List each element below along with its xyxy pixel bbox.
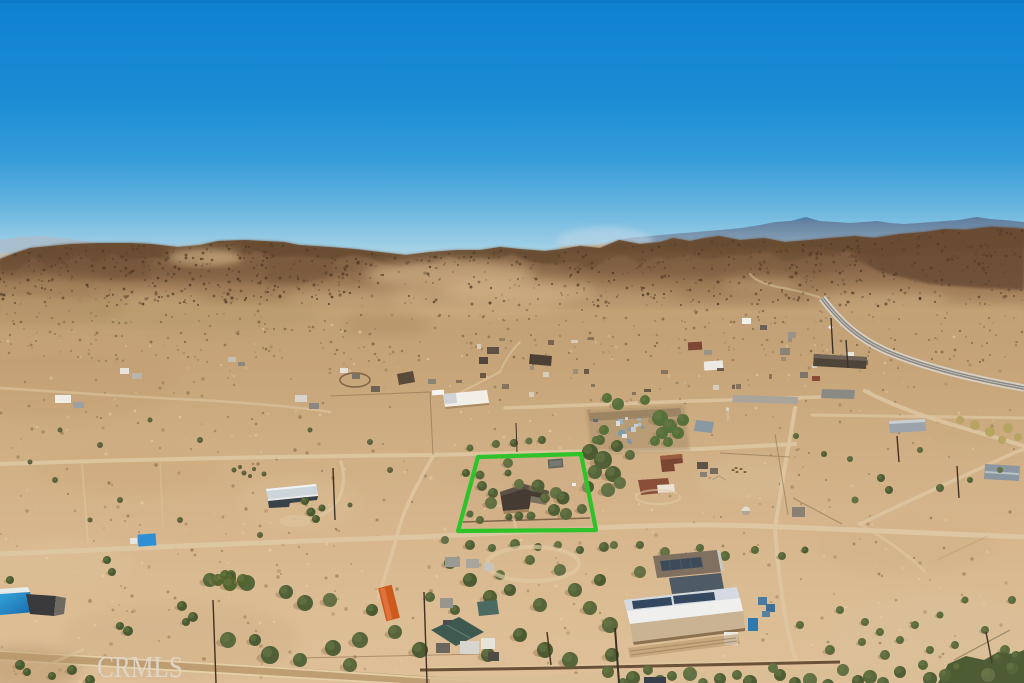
svg-text:CRMLS: CRMLS [97, 649, 183, 683]
